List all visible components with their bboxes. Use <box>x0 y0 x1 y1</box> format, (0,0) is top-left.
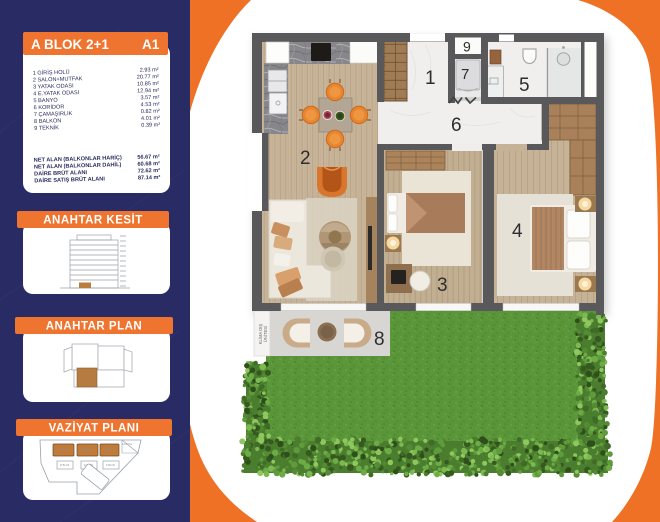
svg-text:8 BALKON: 8 BALKON <box>34 118 62 125</box>
svg-text:5: 5 <box>519 75 530 96</box>
svg-text:F BLOK: F BLOK <box>106 463 115 467</box>
svg-text:10.85 m²: 10.85 m² <box>137 81 159 88</box>
svg-text:1 GİRİŞ HOLÜ: 1 GİRİŞ HOLÜ <box>33 69 70 77</box>
svg-text:4.01 m²: 4.01 m² <box>141 115 160 122</box>
svg-text:60.68 m²: 60.68 m² <box>137 160 160 168</box>
svg-text:ANAHTAR PLAN: ANAHTAR PLAN <box>46 321 143 333</box>
svg-text:3 YATAK ODASI: 3 YATAK ODASI <box>33 83 74 90</box>
svg-text:87.14 m²: 87.14 m² <box>138 174 161 182</box>
svg-text:3: 3 <box>437 275 448 296</box>
svg-text:4.53 m²: 4.53 m² <box>141 102 160 109</box>
svg-text:2: 2 <box>300 148 311 169</box>
svg-text:3.57 m²: 3.57 m² <box>140 95 159 102</box>
svg-text:A1: A1 <box>142 37 160 52</box>
svg-text:VAZİYAT PLANI: VAZİYAT PLANI <box>49 422 140 435</box>
svg-text:72.62 m²: 72.62 m² <box>138 167 161 175</box>
svg-text:2.93 m²: 2.93 m² <box>140 67 159 74</box>
svg-text:20.77 m²: 20.77 m² <box>137 74 159 81</box>
svg-text:9 TEKNİK: 9 TEKNİK <box>34 124 59 132</box>
svg-text:56.67 m²: 56.67 m² <box>137 153 160 161</box>
svg-text:7 ÇAMAŞIRLIK: 7 ÇAMAŞIRLIK <box>34 111 73 118</box>
svg-text:5 BANYO: 5 BANYO <box>33 98 58 105</box>
svg-text:ÜNİTESİ: ÜNİTESİ <box>263 326 268 343</box>
svg-text:6: 6 <box>451 115 462 136</box>
svg-text:12.94 m²: 12.94 m² <box>137 88 159 95</box>
svg-text:0.39 m²: 0.39 m² <box>141 122 160 129</box>
svg-text:4: 4 <box>512 221 523 242</box>
svg-text:D BLOK: D BLOK <box>60 463 70 467</box>
svg-text:6 KORİDOR: 6 KORİDOR <box>34 103 65 111</box>
svg-text:B BLOK: B BLOK <box>82 447 92 451</box>
svg-text:A BLOK 2+1: A BLOK 2+1 <box>31 37 109 52</box>
svg-text:7: 7 <box>461 66 469 83</box>
svg-text:0.82 m²: 0.82 m² <box>141 109 160 116</box>
svg-text:SOSYAL: SOSYAL <box>122 442 133 446</box>
svg-text:9: 9 <box>463 39 471 55</box>
svg-text:ANAHTAR KESİT: ANAHTAR KESİT <box>43 214 143 227</box>
svg-text:8: 8 <box>374 329 385 350</box>
svg-text:A BLOK: A BLOK <box>58 447 67 451</box>
svg-text:1: 1 <box>425 68 436 89</box>
svg-text:C BLOK: C BLOK <box>104 447 114 451</box>
